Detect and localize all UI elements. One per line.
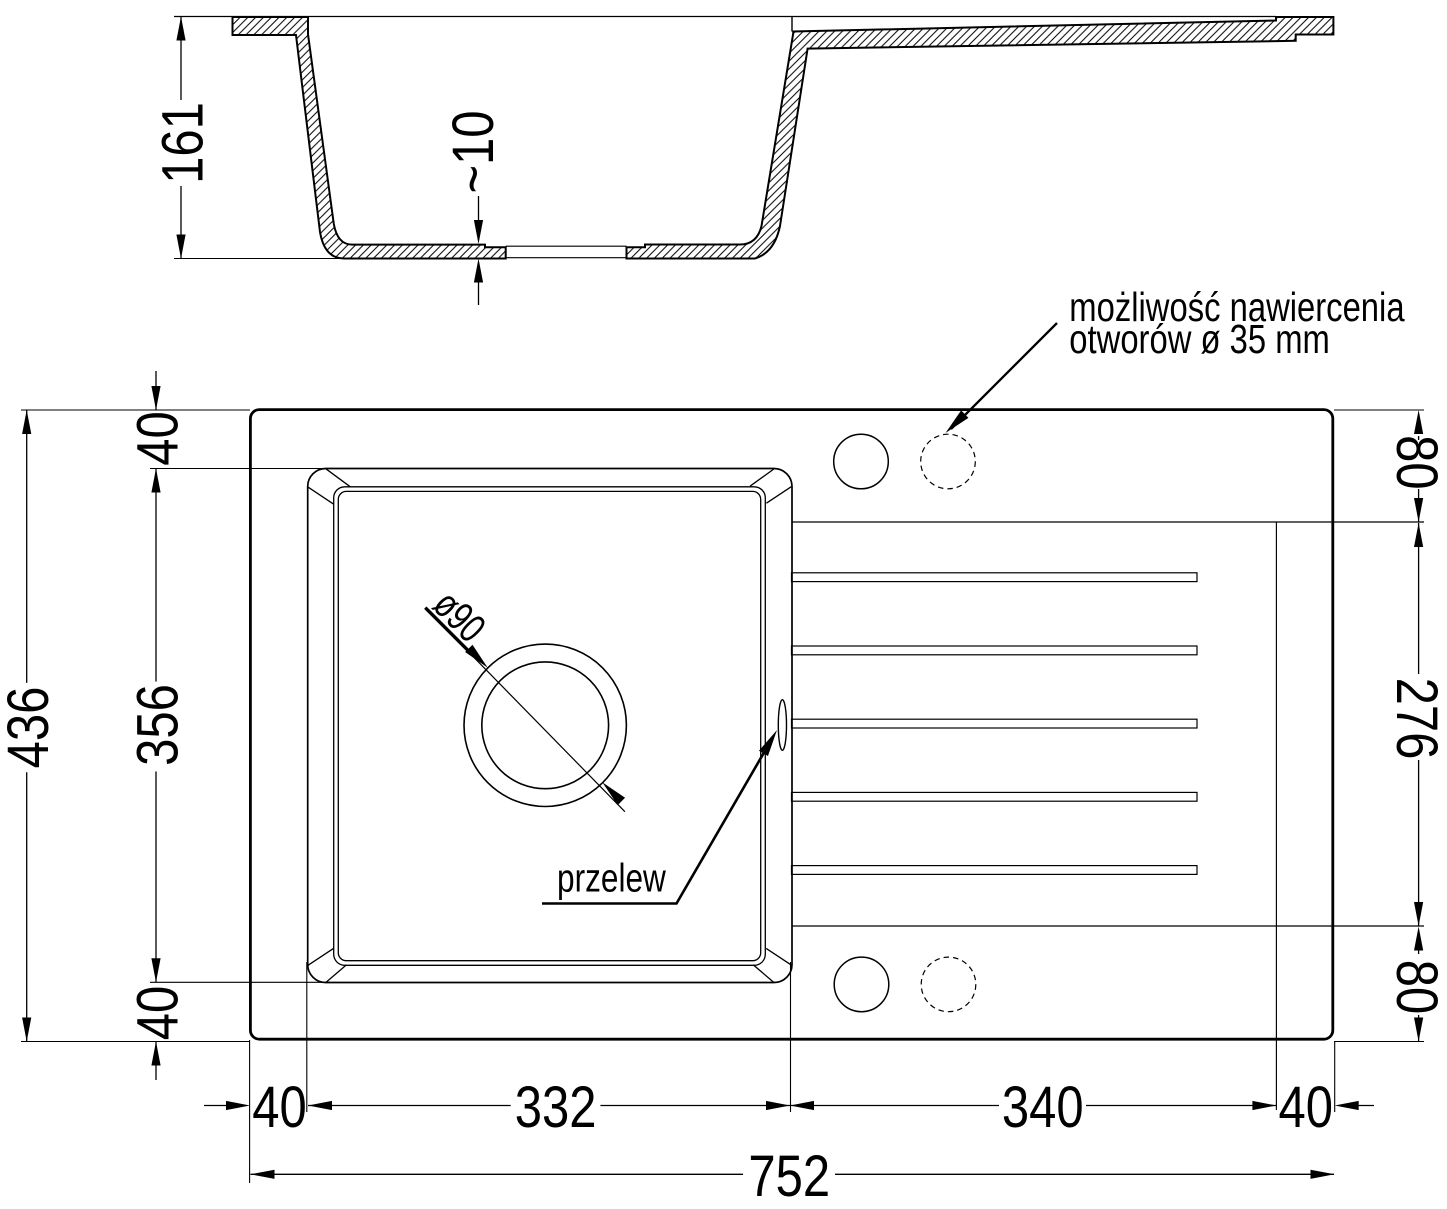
svg-text:40: 40 [252, 1075, 307, 1140]
svg-text:332: 332 [515, 1075, 597, 1140]
svg-text:161: 161 [151, 102, 216, 184]
svg-text:~10: ~10 [441, 110, 506, 193]
svg-text:80: 80 [1384, 960, 1447, 1015]
svg-text:przelew: przelew [557, 855, 667, 900]
svg-text:40: 40 [126, 411, 191, 466]
svg-text:356: 356 [126, 684, 191, 766]
svg-text:40: 40 [126, 986, 191, 1041]
svg-text:340: 340 [1002, 1075, 1084, 1140]
svg-text:40: 40 [1279, 1075, 1334, 1140]
svg-text:752: 752 [748, 1144, 830, 1209]
svg-text:276: 276 [1384, 678, 1447, 760]
svg-text:80: 80 [1384, 435, 1447, 490]
svg-text:436: 436 [0, 687, 61, 769]
svg-text:otworów ø 35 mm: otworów ø 35 mm [1069, 316, 1330, 362]
